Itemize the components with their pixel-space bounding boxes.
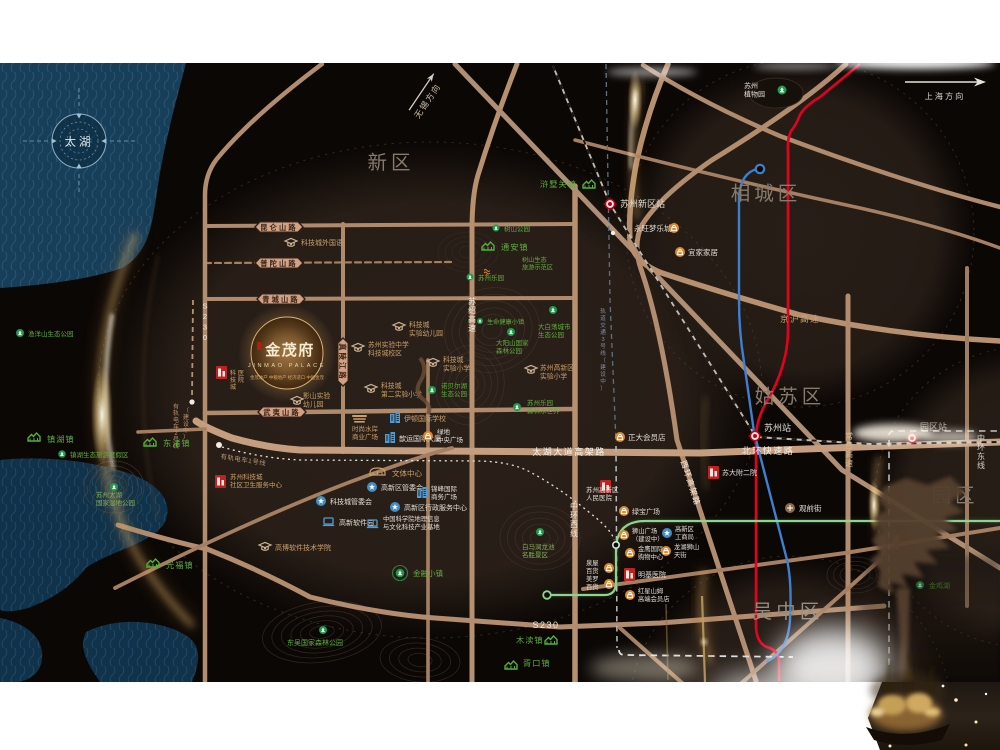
svg-text:人民医院: 人民医院 bbox=[586, 493, 613, 502]
svg-text:龙湖狮山: 龙湖狮山 bbox=[674, 542, 699, 551]
svg-text:北环快速路: 北环快速路 bbox=[742, 445, 795, 456]
svg-text:（建设中）: （建设中） bbox=[183, 408, 189, 441]
svg-text:东渚镇: 东渚镇 bbox=[163, 438, 191, 448]
svg-text:相城区: 相城区 bbox=[731, 183, 802, 205]
svg-text:宜家家居: 宜家家居 bbox=[688, 247, 718, 257]
svg-text:高新区: 高新区 bbox=[675, 524, 694, 533]
svg-text:商业广场: 商业广场 bbox=[352, 432, 379, 441]
svg-text:诺贝尔湖: 诺贝尔湖 bbox=[441, 381, 468, 390]
svg-text:昆仑山路: 昆仑山路 bbox=[260, 223, 298, 232]
svg-text:苏州: 苏州 bbox=[744, 81, 758, 90]
svg-text:大阳山国家: 大阳山国家 bbox=[496, 338, 529, 347]
svg-text:镇湖生态旅游度假区: 镇湖生态旅游度假区 bbox=[70, 450, 129, 459]
svg-text:镇湖镇: 镇湖镇 bbox=[47, 434, 75, 444]
svg-text:科技城校区: 科技城校区 bbox=[368, 348, 402, 357]
svg-text:白马涧龙池: 白马涧龙池 bbox=[522, 542, 555, 551]
svg-text:旅游示范区: 旅游示范区 bbox=[522, 264, 553, 272]
svg-text:生态公园: 生态公园 bbox=[538, 330, 564, 339]
svg-text:苏州高新区: 苏州高新区 bbox=[540, 363, 574, 372]
svg-text:树山生态: 树山生态 bbox=[522, 256, 547, 264]
svg-text:苏州高新区: 苏州高新区 bbox=[586, 485, 619, 494]
svg-text:实验小学: 实验小学 bbox=[540, 371, 567, 380]
svg-text:苏州乐园: 苏州乐园 bbox=[478, 273, 504, 282]
svg-text:光福镇: 光福镇 bbox=[166, 560, 194, 570]
svg-text:苏州乐园: 苏州乐园 bbox=[527, 398, 553, 407]
svg-text:科技城: 科技城 bbox=[443, 355, 464, 364]
svg-text:太湖: 太湖 bbox=[65, 135, 94, 149]
svg-text:中环东线: 中环东线 bbox=[977, 433, 985, 470]
svg-text:高端会员店: 高端会员店 bbox=[638, 594, 669, 603]
svg-text:真陵江路: 真陵江路 bbox=[338, 343, 347, 381]
svg-text:永旺梦乐城: 永旺梦乐城 bbox=[634, 223, 672, 233]
svg-text:苏大附二院: 苏大附二院 bbox=[722, 468, 757, 477]
svg-text:森林水世界: 森林水世界 bbox=[527, 406, 560, 415]
svg-text:苏州新区站: 苏州新区站 bbox=[620, 198, 665, 209]
svg-text:工商局: 工商局 bbox=[675, 532, 694, 541]
svg-text:中国科学院地理信息: 中国科学院地理信息 bbox=[383, 514, 440, 523]
svg-text:歆运国际大厦: 歆运国际大厦 bbox=[399, 434, 441, 443]
svg-text:百货: 百货 bbox=[586, 566, 599, 575]
svg-text:科技城外国语: 科技城外国语 bbox=[301, 238, 343, 247]
svg-text:狮山广场: 狮山广场 bbox=[632, 526, 657, 535]
svg-text:生命健康小镇: 生命健康小镇 bbox=[487, 318, 524, 326]
svg-text:渔洋山生态公园: 渔洋山生态公园 bbox=[28, 329, 74, 338]
svg-text:上海方向: 上海方向 bbox=[925, 91, 966, 101]
svg-text:普陀山路: 普陀山路 bbox=[260, 259, 298, 268]
svg-text:森林公园: 森林公园 bbox=[496, 346, 522, 355]
svg-text:苏州科技城: 苏州科技城 bbox=[230, 472, 263, 481]
svg-text:胥口镇: 胥口镇 bbox=[523, 658, 551, 668]
svg-text:红星山姆: 红星山姆 bbox=[638, 586, 664, 595]
svg-text:科技城: 科技城 bbox=[381, 381, 402, 390]
svg-text:大白荡城市: 大白荡城市 bbox=[538, 322, 571, 331]
svg-text:明基医院: 明基医院 bbox=[638, 570, 666, 579]
svg-text:商务广场: 商务广场 bbox=[431, 492, 458, 501]
svg-text:中环西线: 中环西线 bbox=[570, 501, 578, 538]
svg-text:幼儿园: 幼儿园 bbox=[303, 399, 324, 408]
svg-text:社区卫生服务中心: 社区卫生服务中心 bbox=[230, 480, 283, 489]
svg-text:生态公园: 生态公园 bbox=[441, 389, 467, 398]
svg-text:高新区管委会: 高新区管委会 bbox=[381, 483, 423, 492]
svg-text:通安镇: 通安镇 bbox=[501, 242, 529, 252]
svg-text:京沪高速: 京沪高速 bbox=[780, 314, 820, 324]
svg-text:金鹰国际: 金鹰国际 bbox=[638, 544, 663, 553]
svg-text:浒墅关镇: 浒墅关镇 bbox=[540, 179, 577, 189]
svg-text:轨道交通3号线（建设中）: 轨道交通3号线（建设中） bbox=[600, 307, 606, 392]
svg-text:木渎镇: 木渎镇 bbox=[516, 635, 544, 645]
svg-text:苏州站: 苏州站 bbox=[764, 422, 791, 433]
svg-text:东吴国家森林公园: 东吴国家森林公园 bbox=[287, 638, 343, 647]
svg-text:泉屋: 泉屋 bbox=[586, 558, 599, 567]
svg-text:观前街: 观前街 bbox=[799, 503, 822, 513]
svg-text:S230: S230 bbox=[202, 302, 207, 343]
svg-text:金茂地产 中粮地产 经济适口 中国金茂: 金茂地产 中粮地产 经济适口 中国金茂 bbox=[250, 374, 325, 381]
svg-text:吴中区: 吴中区 bbox=[753, 601, 824, 623]
svg-text:植物园: 植物园 bbox=[744, 90, 765, 99]
svg-text:锦峰国际: 锦峰国际 bbox=[431, 484, 458, 493]
svg-text:文体中心: 文体中心 bbox=[392, 468, 422, 478]
svg-text:苏州实验中学: 苏州实验中学 bbox=[368, 340, 409, 349]
svg-text:青城山路: 青城山路 bbox=[262, 295, 300, 304]
svg-text:金融小镇: 金融小镇 bbox=[413, 568, 443, 578]
svg-text:高博软件技术学院: 高博软件技术学院 bbox=[275, 543, 331, 552]
svg-text:新区: 新区 bbox=[367, 152, 414, 174]
svg-text:S230: S230 bbox=[532, 620, 559, 630]
svg-text:JINMAO PALACE: JINMAO PALACE bbox=[248, 363, 326, 369]
svg-text:名胜景区: 名胜景区 bbox=[522, 550, 549, 559]
svg-text:苏绍高速: 苏绍高速 bbox=[468, 296, 476, 333]
svg-text:科技城管委会: 科技城管委会 bbox=[330, 497, 372, 506]
svg-text:武夷山路: 武夷山路 bbox=[263, 408, 301, 417]
svg-text:百货: 百货 bbox=[586, 582, 599, 591]
svg-text:高新区行政服务中心: 高新区行政服务中心 bbox=[404, 503, 467, 512]
svg-text:天街: 天街 bbox=[674, 550, 687, 559]
svg-text:伊顿国际学校: 伊顿国际学校 bbox=[404, 414, 446, 423]
svg-text:树山公园: 树山公园 bbox=[504, 224, 530, 233]
svg-text:与文化科技产业基地: 与文化科技产业基地 bbox=[383, 522, 440, 531]
svg-text:实验小学: 实验小学 bbox=[443, 363, 470, 372]
svg-text:正大会员店: 正大会员店 bbox=[628, 432, 666, 442]
svg-text:金茂府: 金茂府 bbox=[264, 341, 315, 359]
svg-text:国家湿地公园: 国家湿地公园 bbox=[96, 498, 135, 507]
svg-text:绿宝广场: 绿宝广场 bbox=[632, 507, 660, 516]
svg-text:实验幼儿园: 实验幼儿园 bbox=[409, 328, 443, 337]
svg-text:太湖大道高架路: 太湖大道高架路 bbox=[532, 446, 606, 457]
svg-text:时尚水岸: 时尚水岸 bbox=[352, 424, 379, 433]
svg-text:绿地: 绿地 bbox=[437, 427, 451, 436]
svg-text:苏州太湖: 苏州太湖 bbox=[96, 490, 123, 499]
svg-text:科技城: 科技城 bbox=[409, 320, 430, 329]
svg-text:姑苏区: 姑苏区 bbox=[755, 386, 826, 408]
svg-text:科技城: 科技城 bbox=[230, 369, 236, 391]
svg-text:中央广场: 中央广场 bbox=[437, 435, 464, 444]
svg-text:（建设中）: （建设中） bbox=[632, 534, 663, 543]
svg-text:美罗: 美罗 bbox=[586, 574, 599, 583]
svg-text:常台高速: 常台高速 bbox=[845, 432, 853, 468]
svg-text:购物中心: 购物中心 bbox=[638, 552, 664, 561]
